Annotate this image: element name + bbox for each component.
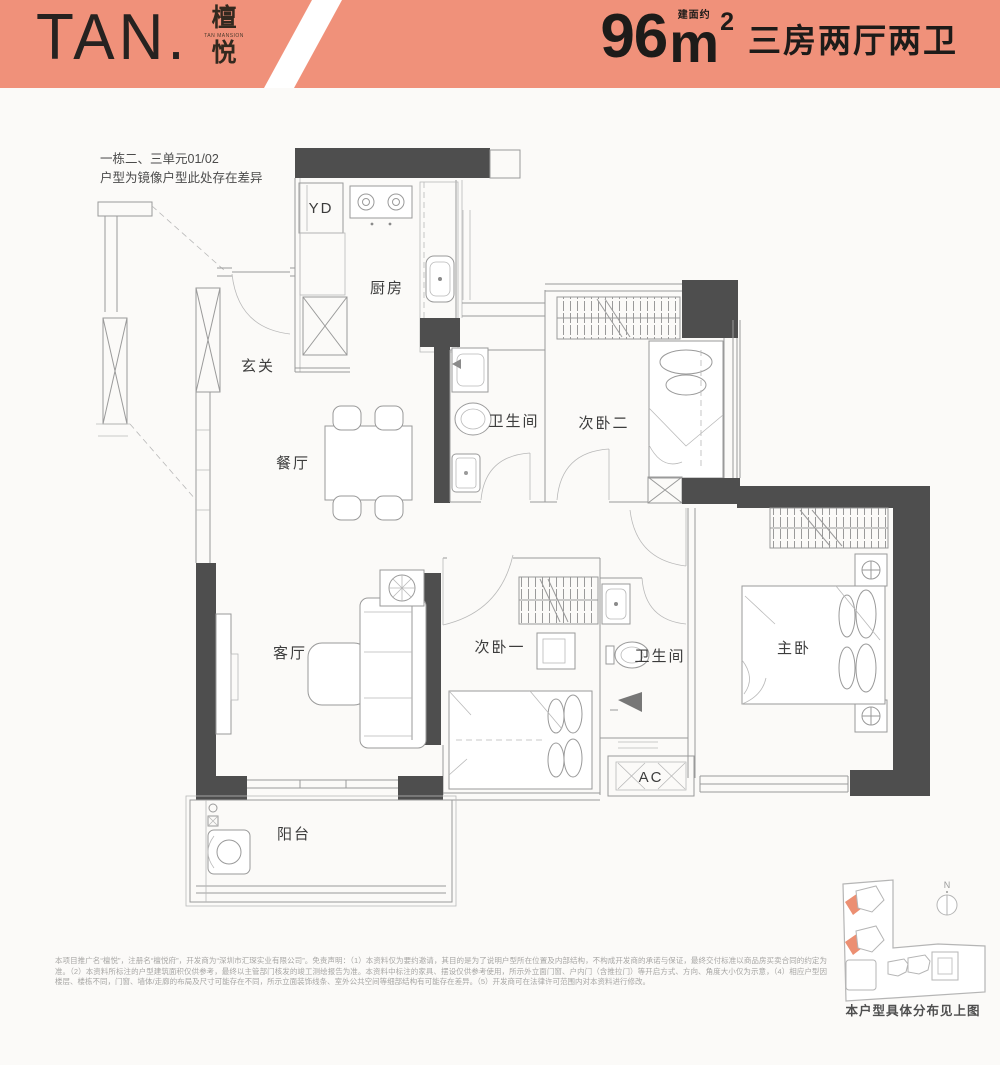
legal-disclaimer: 本项目推广名“檀悦”，注册名“檀悦府”，开发商为“深圳市汇琛实业有限公司”。免责…: [55, 956, 827, 988]
exterior-core: [96, 202, 224, 500]
room-label-kitchen: 厨房: [370, 280, 404, 297]
floorplan-poster: TAN. 檀 TAN MANSION 悦 96 建面约 m 2 三房两厅两卫 一…: [0, 0, 1000, 1065]
room-label-yd: YD: [309, 200, 334, 217]
room-label-balcony: 阳台: [277, 826, 311, 843]
sitemap-diagram: N: [843, 880, 985, 1001]
room-label-bedroom2: 次卧二: [578, 415, 629, 432]
room-label-dining: 餐厅: [276, 455, 310, 472]
bathroom2-room: 卫生间: [600, 578, 688, 738]
room-label-living: 客厅: [273, 645, 307, 662]
room-label-ac: AC: [639, 769, 664, 786]
bathroom1-room: 卫生间: [450, 290, 545, 502]
floorplan-drawing: YD 厨房: [0, 0, 1000, 1065]
room-label-master: 主卧: [777, 640, 811, 657]
master-bedroom-room: 主卧: [688, 486, 930, 796]
compass-label: N: [944, 880, 951, 890]
bedroom2-room: 次卧二: [545, 280, 738, 503]
bedroom1-room: 次卧一: [443, 555, 600, 800]
sitemap-caption: 本户型具体分布见上图: [828, 1000, 998, 1019]
room-label-bath1: 卫生间: [488, 413, 539, 430]
room-label-bath2: 卫生间: [634, 648, 685, 665]
balcony-room: 阳台: [186, 796, 456, 906]
room-label-entry: 玄关: [241, 358, 275, 375]
compass-icon: N: [937, 880, 957, 915]
entry-hall: 玄关: [196, 268, 295, 392]
ac-platform: AC: [608, 742, 694, 796]
dining-room: 餐厅: [196, 392, 412, 563]
living-room: 客厅: [196, 563, 443, 800]
room-label-bedroom1: 次卧一: [474, 639, 525, 656]
